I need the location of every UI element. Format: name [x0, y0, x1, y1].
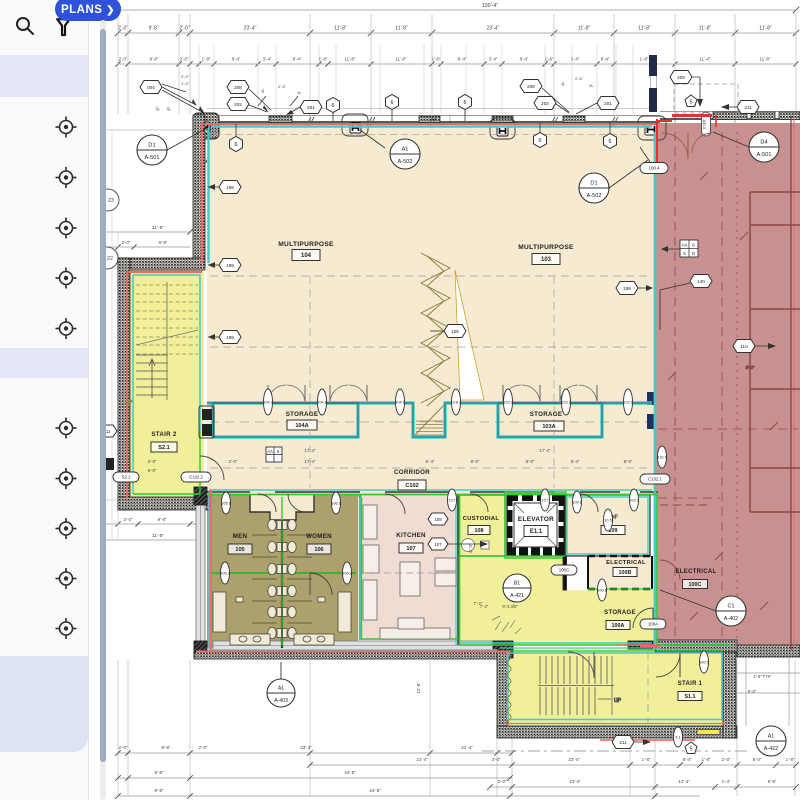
svg-text:A-502: A-502	[587, 193, 602, 199]
svg-text:199: 199	[226, 335, 234, 340]
svg-text:108: 108	[434, 517, 442, 522]
svg-text:201: 201	[307, 105, 315, 110]
svg-text:2’-6”: 2’-6”	[575, 76, 584, 81]
svg-text:5.1: 5.1	[675, 736, 680, 740]
svg-text:6: 6	[464, 100, 467, 106]
svg-text:3’-4”: 3’-4”	[489, 57, 498, 62]
svg-text:100A: 100A	[612, 623, 625, 629]
svg-text:10.5: 10.5	[604, 519, 611, 523]
svg-text:A1: A1	[278, 686, 284, 692]
svg-text:199: 199	[623, 286, 631, 291]
svg-text:8’-4”: 8’-4”	[601, 57, 610, 62]
svg-text:1C8.2: 1C8.2	[451, 401, 461, 405]
svg-text:106.1: 106.1	[331, 502, 341, 506]
svg-text:8’-0”: 8’-0”	[746, 365, 755, 370]
svg-text:23: 23	[108, 198, 114, 204]
svg-text:UP: UP	[614, 698, 622, 704]
svg-text:9’-8”: 9’-8”	[158, 517, 167, 522]
svg-text:105.1: 105.1	[221, 502, 231, 506]
svg-text:C102.2: C102.2	[189, 475, 203, 480]
svg-text:2’-0”: 2’-0”	[148, 459, 157, 464]
svg-text:21’-4”: 21’-4”	[416, 757, 428, 762]
svg-text:23’-4”: 23’-4”	[569, 779, 581, 784]
svg-text:11’-4”: 11’-4”	[700, 57, 711, 62]
svg-text:199: 199	[226, 185, 234, 190]
svg-text:100.1: 100.1	[597, 589, 607, 593]
svg-text:208: 208	[527, 84, 535, 89]
svg-text:8’-4”: 8’-4”	[458, 57, 467, 62]
svg-text:MEN: MEN	[233, 533, 248, 540]
svg-text:004: 004	[147, 85, 155, 90]
svg-text:9’-8”: 9’-8”	[154, 770, 164, 775]
svg-text:6’-4”: 6’-4”	[426, 459, 435, 464]
svg-text:8’-0”: 8’-0”	[526, 459, 535, 464]
svg-text:44’-8”: 44’-8”	[369, 788, 381, 793]
svg-text:AA: AA	[267, 449, 273, 454]
svg-text:E1.1: E1.1	[530, 529, 543, 535]
svg-text:A-501: A-501	[757, 152, 772, 158]
svg-text:A-422: A-422	[764, 746, 778, 752]
svg-text:105: 105	[451, 329, 459, 334]
svg-text:1’-8”: 1’-8”	[202, 57, 211, 62]
svg-text:A-402: A-402	[724, 616, 738, 622]
svg-text:A-502: A-502	[398, 159, 413, 165]
svg-text:209: 209	[677, 75, 685, 80]
svg-text:3’-4”: 3’-4”	[263, 57, 272, 62]
svg-text:11’-8”: 11’-8”	[345, 57, 356, 62]
svg-text:11’-8”: 11’-8”	[578, 26, 591, 32]
svg-text:202: 202	[541, 101, 549, 106]
svg-text:106: 106	[314, 547, 323, 553]
svg-text:11’-8”: 11’-8”	[396, 57, 407, 62]
svg-text:1’-0”: 1’-0”	[181, 81, 190, 86]
svg-text:100.3: 100.3	[702, 119, 707, 130]
svg-text:5: 5	[690, 747, 693, 753]
svg-text:1’-8”: 1’-8”	[545, 57, 554, 62]
svg-text:104: 104	[301, 253, 312, 259]
svg-text:2’-0”: 2’-0”	[119, 57, 128, 62]
svg-text:23’-4”: 23’-4”	[300, 745, 312, 750]
svg-text:5’-4”: 5’-4”	[571, 459, 580, 464]
svg-text:11’-8”: 11’-8”	[152, 225, 164, 231]
svg-text:105.2: 105.2	[220, 572, 230, 576]
svg-text:104A: 104A	[295, 423, 308, 429]
svg-text:2’-0”: 2’-0”	[181, 74, 190, 79]
svg-text:11’-8”: 11’-8”	[759, 26, 772, 32]
svg-text:23’-4”: 23’-4”	[244, 26, 257, 32]
svg-text:103.2: 103.2	[503, 401, 513, 405]
svg-text:2’-0”: 2’-0”	[122, 240, 131, 245]
svg-text:11’-8”: 11’-8”	[334, 26, 347, 32]
svg-text:104.1: 104.1	[395, 401, 405, 405]
svg-text:B1: B1	[514, 581, 520, 587]
svg-text:8’-0”: 8’-0”	[471, 459, 480, 464]
svg-text:STORAGE: STORAGE	[530, 411, 563, 418]
svg-text:12’-4”: 12’-4”	[678, 779, 690, 784]
svg-text:202: 202	[234, 102, 242, 107]
svg-text:9’-8”: 9’-8”	[154, 788, 164, 793]
svg-text:2’-0”: 2’-0”	[180, 57, 189, 62]
svg-text:9’-3 3/8”: 9’-3 3/8”	[502, 604, 518, 609]
svg-text:C102.1: C102.1	[648, 477, 662, 482]
svg-text:2’-0”: 2’-0”	[498, 779, 507, 784]
svg-text:103.1: 103.1	[623, 401, 633, 405]
svg-text:1’-8”: 1’-8”	[786, 757, 795, 762]
svg-text:107: 107	[434, 542, 442, 547]
svg-text:2’-0”: 2’-0”	[492, 757, 501, 762]
svg-text:9’-8”: 9’-8”	[159, 240, 168, 245]
svg-text:199: 199	[226, 263, 234, 268]
svg-text:ELECTRICAL: ELECTRICAL	[606, 560, 646, 566]
svg-text:23’-4”: 23’-4”	[487, 26, 500, 32]
svg-text:A1: A1	[768, 734, 775, 740]
svg-text:103: 103	[541, 257, 552, 263]
svg-text:100B: 100B	[619, 570, 632, 576]
svg-text:11’-8”: 11’-8”	[638, 26, 651, 32]
svg-text:1’-8”: 1’-8”	[702, 757, 711, 762]
svg-text:11’-8”: 11’-8”	[152, 533, 164, 539]
svg-text:S1.1: S1.1	[684, 694, 695, 700]
svg-text:ELEVATOR: ELEVATOR	[518, 516, 554, 523]
svg-text:WOMEN: WOMEN	[306, 533, 332, 540]
svg-text:2’-0”: 2’-0”	[198, 745, 208, 750]
svg-text:100A: 100A	[648, 622, 658, 627]
svg-text:D4: D4	[760, 140, 767, 146]
svg-text:8’-0”: 8’-0”	[624, 459, 633, 464]
svg-text:6: 6	[609, 139, 612, 145]
svg-text:6: 6	[391, 100, 394, 106]
svg-text:8’-4”: 8’-4”	[293, 57, 302, 62]
svg-text:STAIR 2: STAIR 2	[151, 431, 177, 438]
svg-text:108: 108	[475, 528, 484, 534]
svg-text:104.2: 104.2	[263, 401, 273, 405]
svg-text:23’-4”: 23’-4”	[568, 757, 580, 762]
svg-text:2’-0”: 2’-0”	[722, 757, 731, 762]
svg-text:6’-0”: 6’-0”	[148, 468, 157, 473]
svg-text:140: 140	[697, 279, 705, 284]
svg-text:211: 211	[744, 105, 752, 110]
svg-text:44’-8”: 44’-8”	[344, 770, 356, 775]
svg-text:A-421: A-421	[510, 593, 524, 599]
svg-text:130’-4”: 130’-4”	[482, 3, 498, 9]
svg-text:2’-0”: 2’-0”	[278, 84, 287, 89]
svg-text:2’-0”: 2’-0”	[229, 459, 238, 464]
svg-text:8’-4”: 8’-4”	[520, 57, 529, 62]
svg-text:100.5: 100.5	[699, 661, 709, 665]
svg-text:106.2: 106.2	[342, 572, 352, 576]
svg-text:UP: UP	[125, 400, 133, 406]
svg-text:C102: C102	[405, 483, 418, 489]
svg-text:KITCHEN: KITCHEN	[396, 532, 426, 539]
svg-text:STORAGE: STORAGE	[286, 411, 319, 418]
svg-text:1’-4”: 1’-4”	[722, 779, 731, 784]
svg-text:A-501: A-501	[145, 155, 160, 161]
svg-text:12’-8”: 12’-8”	[416, 682, 421, 694]
svg-text:2’-0”: 2’-0”	[118, 745, 128, 750]
svg-text:201: 201	[604, 101, 612, 106]
svg-text:110.1: 110.1	[657, 456, 666, 460]
svg-text:MULTIPURPOSE: MULTIPURPOSE	[518, 244, 574, 251]
svg-text:11’-8”: 11’-8”	[760, 57, 771, 62]
svg-text:22: 22	[107, 256, 113, 262]
svg-text:MULTIPURPOSE: MULTIPURPOSE	[278, 241, 334, 248]
svg-text:STORAGE: STORAGE	[604, 610, 636, 616]
svg-text:104.1: 104.1	[317, 401, 327, 405]
svg-text:8’-0”: 8’-0”	[753, 757, 762, 762]
svg-text:6: 6	[539, 138, 542, 144]
svg-text:9’-8”: 9’-8”	[150, 57, 159, 62]
svg-text:2’-0”: 2’-0”	[179, 26, 189, 32]
svg-text:7’-2”: 7’-2”	[480, 604, 489, 609]
svg-text:100C: 100C	[559, 568, 570, 573]
svg-text:100.4: 100.4	[649, 166, 661, 171]
svg-text:103.3: 103.3	[629, 499, 639, 503]
svg-text:6: 6	[332, 103, 335, 109]
svg-text:110: 110	[740, 344, 748, 349]
svg-text:ELECTRICAL: ELECTRICAL	[676, 569, 717, 575]
svg-text:105: 105	[235, 547, 244, 553]
svg-text:11’-8”: 11’-8”	[699, 26, 712, 32]
svg-text:CUSTODIAL: CUSTODIAL	[463, 516, 500, 522]
svg-text:5: 5	[690, 100, 693, 106]
svg-text:208: 208	[234, 85, 242, 90]
svg-text:S2.1: S2.1	[158, 445, 170, 451]
svg-text:100C: 100C	[689, 582, 702, 588]
svg-text:2’-0”: 2’-0”	[124, 517, 133, 522]
svg-text:109.1: 109.1	[572, 501, 582, 505]
svg-text:A-403: A-403	[274, 698, 288, 704]
svg-text:D1: D1	[148, 143, 155, 149]
svg-text:1’-8”: 1’-8”	[642, 757, 651, 762]
svg-text:1C7: 1C7	[542, 499, 549, 503]
svg-text:9’-8”: 9’-8”	[148, 26, 158, 32]
svg-text:S2.1: S2.1	[121, 475, 131, 480]
svg-text:1’-8”: 1’-8”	[319, 57, 328, 62]
svg-text:9’-8”: 9’-8”	[161, 745, 171, 750]
svg-text:6: 6	[235, 142, 238, 148]
svg-text:STAIR 1: STAIR 1	[678, 681, 703, 687]
svg-text:11’-8”: 11’-8”	[395, 26, 408, 32]
svg-text:1C7: 1C7	[449, 499, 456, 503]
svg-text:2’-0”: 2’-0”	[118, 26, 128, 32]
svg-text:AA: AA	[682, 243, 688, 248]
svg-text:17’-4”: 17’-4”	[539, 448, 551, 453]
svg-text:103A: 103A	[542, 424, 555, 430]
svg-text:D: D	[692, 251, 695, 256]
svg-text:CORRIDOR: CORRIDOR	[394, 469, 430, 476]
svg-text:17’-4”: 17’-4”	[304, 448, 316, 453]
svg-text:1’-8”: 1’-8”	[432, 57, 441, 62]
svg-text:211: 211	[619, 740, 627, 745]
svg-text:A1: A1	[402, 147, 409, 153]
svg-text:1’-8”: 1’-8”	[640, 57, 649, 62]
svg-text:9’-8”: 9’-8”	[768, 779, 777, 784]
svg-text:8’-4”: 8’-4”	[232, 57, 241, 62]
svg-text:D1: D1	[590, 181, 597, 187]
svg-text:107: 107	[406, 546, 415, 552]
svg-text:21’-4”: 21’-4”	[461, 745, 473, 750]
svg-text:17’-4”: 17’-4”	[304, 459, 316, 464]
svg-text:103.1: 103.1	[561, 401, 571, 405]
svg-text:1’-8” TYP: 1’-8” TYP	[753, 674, 771, 679]
svg-text:C1: C1	[728, 604, 735, 610]
svg-text:8’-0”: 8’-0”	[748, 689, 757, 694]
svg-text:8’-4”: 8’-4”	[683, 757, 692, 762]
